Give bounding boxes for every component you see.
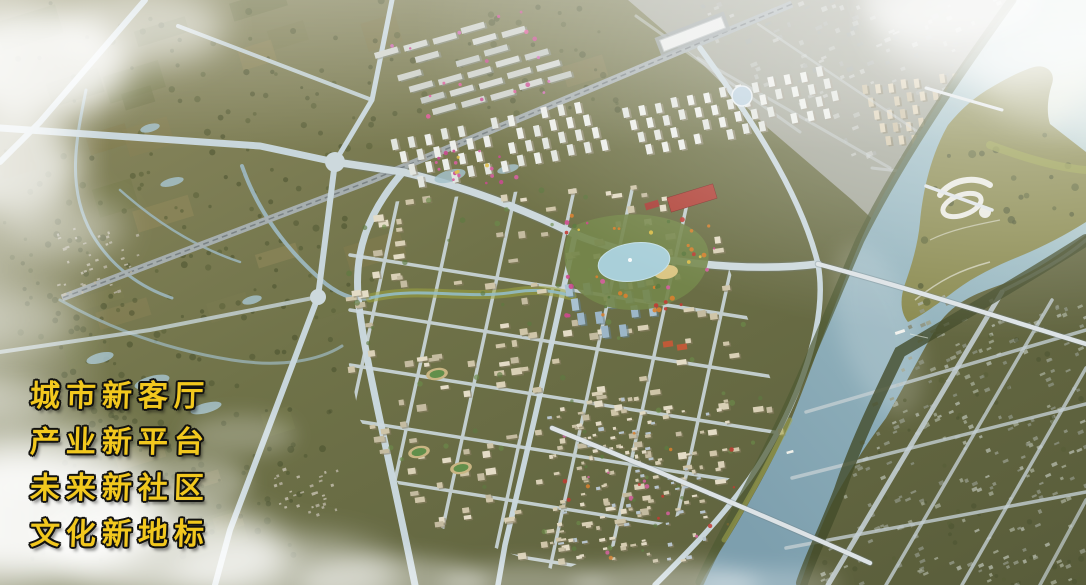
slogan-line-2: 产业新平台 bbox=[29, 420, 211, 466]
slogan-line-1: 城市新客厅 bbox=[29, 374, 211, 420]
slogan-line-4: 文化新地标 bbox=[29, 512, 211, 558]
slogan-overlay: 城市新客厅 产业新平台 未来新社区 文化新地标 bbox=[30, 374, 210, 558]
slogan-line-3: 未来新社区 bbox=[29, 466, 211, 512]
aerial-city-rendering: 城市新客厅 产业新平台 未来新社区 文化新地标 bbox=[0, 0, 1086, 585]
